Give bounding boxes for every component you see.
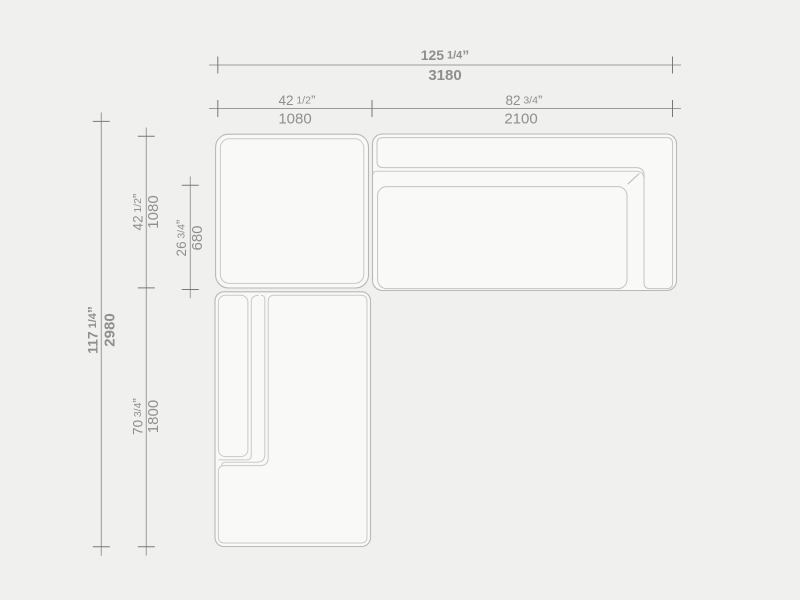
svg-text:680: 680 bbox=[189, 225, 206, 250]
svg-text:82 3/4”: 82 3/4” bbox=[506, 93, 543, 108]
svg-text:1800: 1800 bbox=[145, 400, 162, 433]
svg-text:42 1/2”: 42 1/2” bbox=[279, 93, 316, 108]
svg-text:3180: 3180 bbox=[428, 67, 461, 84]
svg-text:2980: 2980 bbox=[102, 313, 119, 346]
svg-text:26 3/4”: 26 3/4” bbox=[174, 220, 189, 257]
svg-text:117 1/4”: 117 1/4” bbox=[85, 306, 101, 354]
svg-text:42 1/2”: 42 1/2” bbox=[131, 194, 146, 231]
svg-text:125 1/4”: 125 1/4” bbox=[421, 47, 470, 63]
svg-text:1080: 1080 bbox=[145, 195, 162, 228]
svg-text:70 3/4”: 70 3/4” bbox=[131, 398, 146, 435]
svg-text:1080: 1080 bbox=[278, 111, 311, 128]
svg-text:2100: 2100 bbox=[504, 111, 537, 128]
